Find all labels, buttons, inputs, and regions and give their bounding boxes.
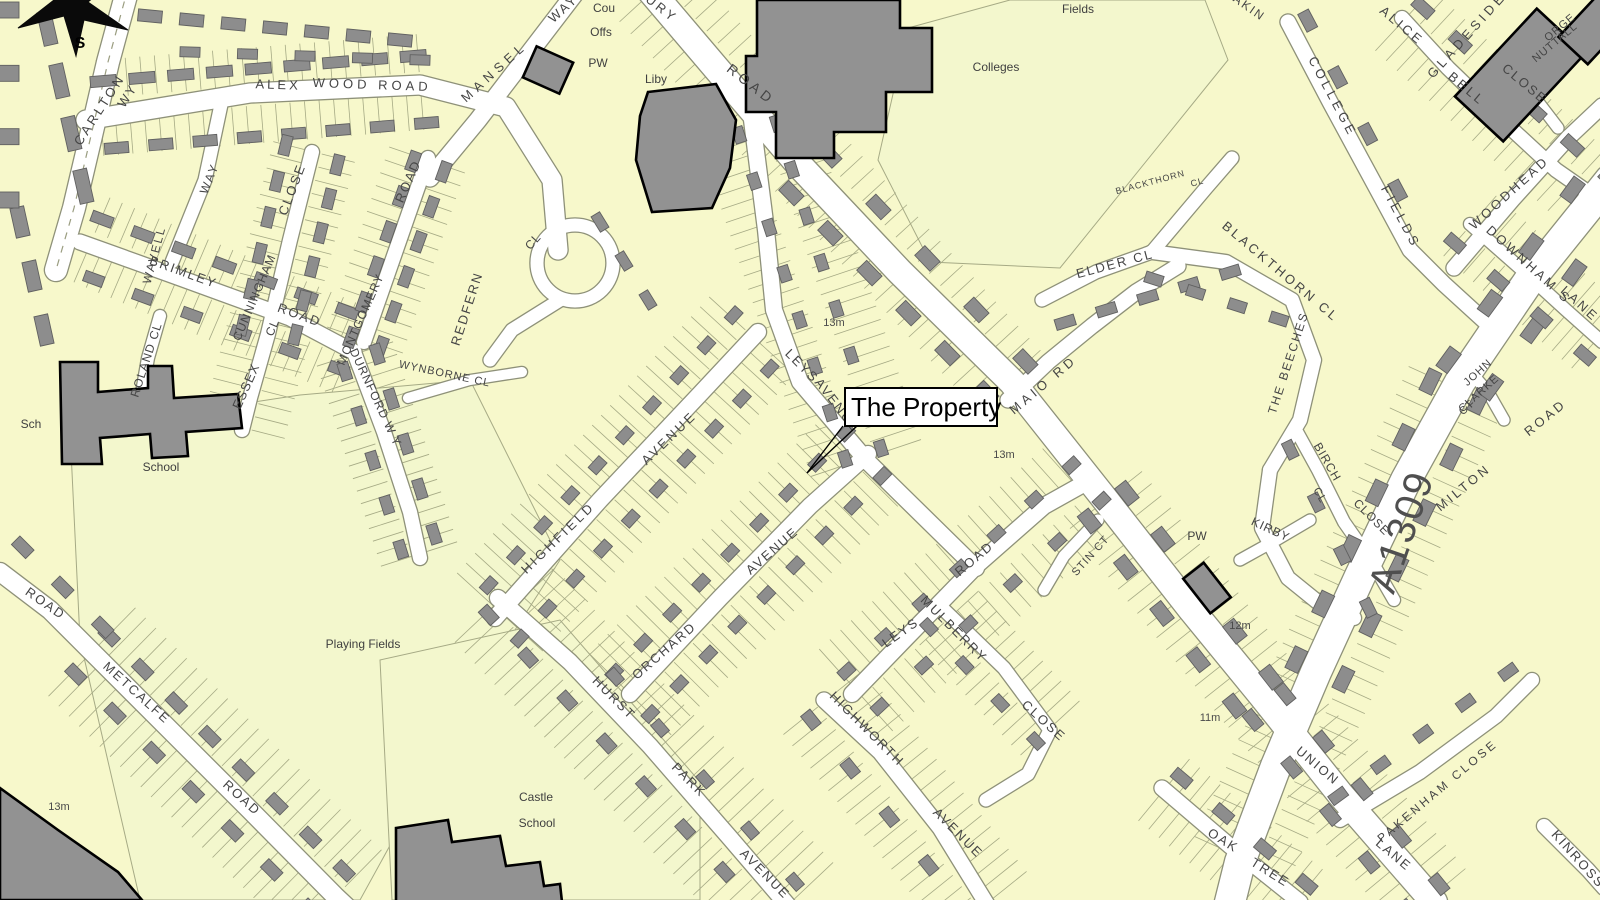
- building: [670, 675, 689, 694]
- landmark-building: [636, 84, 736, 212]
- parcel-line: [1055, 701, 1079, 723]
- parcel-line: [1288, 796, 1321, 811]
- building: [1440, 443, 1463, 471]
- parcel-line: [1002, 713, 1026, 735]
- building: [22, 260, 42, 292]
- elevation-label-13m: 13m: [48, 801, 69, 813]
- parcel-line: [882, 830, 916, 858]
- parcel-line: [1046, 691, 1070, 713]
- parcel-line: [1175, 544, 1200, 564]
- building: [1212, 803, 1235, 825]
- building: [261, 206, 276, 228]
- building: [721, 543, 740, 562]
- place-label-fields: Fields: [1062, 2, 1094, 16]
- building: [750, 513, 769, 532]
- building: [181, 306, 204, 323]
- road-leys-road: [852, 478, 1094, 694]
- building: [245, 62, 272, 75]
- building: [346, 29, 371, 43]
- parcel-line: [983, 860, 1017, 888]
- parcel-line: [1297, 789, 1322, 809]
- building: [697, 336, 716, 355]
- parcel-line: [307, 347, 322, 382]
- parcel-line: [111, 263, 126, 298]
- building: [1227, 298, 1247, 314]
- parcel-line: [325, 381, 355, 391]
- building: [304, 256, 319, 278]
- parcel-line: [1357, 643, 1390, 658]
- map-canvas[interactable]: CARLTONWYALEXWOOD ROADMANSELWAYURYROADWA…: [0, 0, 1600, 900]
- parcel-line: [707, 11, 729, 31]
- elevation-label-12m: 12m: [1229, 620, 1250, 632]
- parcel-line: [1169, 822, 1189, 847]
- parcel-line: [1136, 496, 1161, 516]
- building: [639, 290, 657, 311]
- parcel-line: [404, 253, 434, 263]
- building: [180, 47, 200, 58]
- parcel-line: [275, 104, 278, 142]
- building: [179, 13, 204, 27]
- road-maio-rd: [1008, 266, 1178, 400]
- building: [1562, 259, 1587, 287]
- building: [11, 536, 34, 559]
- building: [385, 301, 402, 324]
- parcel-line: [1365, 872, 1390, 892]
- parcel-line: [918, 875, 952, 900]
- building: [148, 138, 173, 151]
- building: [714, 861, 735, 882]
- parcel-line: [1552, 326, 1574, 351]
- building: [1455, 693, 1476, 712]
- parcel-line: [298, 246, 331, 254]
- parcel-line: [801, 729, 835, 757]
- parcel-line: [675, 62, 697, 82]
- parcel-line: [725, 789, 764, 825]
- parcel-line: [1396, 394, 1429, 409]
- building: [0, 129, 19, 145]
- parcel-line: [940, 265, 962, 285]
- building: [634, 633, 653, 652]
- building: [10, 206, 30, 238]
- building: [1413, 724, 1434, 743]
- parcel-line: [952, 278, 974, 298]
- building: [914, 656, 933, 675]
- parcel-line: [1166, 630, 1191, 650]
- road-label-akin: AKIN: [1231, 0, 1269, 24]
- parcel-line: [250, 234, 283, 242]
- parcel-line: [740, 596, 775, 631]
- parcel-line: [1205, 678, 1230, 698]
- parcel-line: [765, 831, 804, 867]
- building: [621, 509, 640, 528]
- parcel-line: [1343, 751, 1368, 771]
- parcel-line: [1397, 46, 1420, 71]
- parcel-line: [870, 426, 916, 442]
- building: [566, 569, 585, 588]
- building: [278, 134, 293, 156]
- parcel-line: [220, 352, 253, 360]
- place-label-school: School: [143, 460, 180, 474]
- building: [304, 25, 329, 39]
- parcel-line: [1251, 889, 1271, 900]
- road-label-redfern: REDFERN: [448, 270, 486, 348]
- parcel-line: [729, 35, 751, 55]
- place-label-cou: Cou: [593, 1, 615, 15]
- building: [132, 288, 155, 305]
- parcel-line: [821, 279, 867, 295]
- parcel-line: [1220, 781, 1253, 796]
- elevation-label-11m: 11m: [1200, 712, 1221, 724]
- parcel-line: [120, 208, 135, 243]
- building: [844, 346, 859, 365]
- parcel-line: [1146, 508, 1171, 528]
- parcel-line: [1149, 805, 1169, 830]
- building: [1170, 767, 1193, 789]
- building: [1332, 666, 1355, 694]
- building: [221, 17, 246, 31]
- building: [1573, 344, 1596, 366]
- building: [321, 188, 336, 210]
- road-highfield-avenue: [495, 332, 758, 618]
- parcel-line: [992, 871, 1026, 899]
- parcel-line: [979, 592, 1010, 626]
- road-highworth-avenue: [824, 700, 988, 900]
- parcel-line: [367, 211, 397, 221]
- map-svg: CARLTONWYALEXWOOD ROADMANSELWAYURYROADWA…: [0, 0, 1600, 900]
- parcel-line: [1351, 657, 1384, 672]
- parcel-line: [1159, 813, 1179, 838]
- parcel-line: [852, 373, 898, 389]
- building: [83, 270, 106, 287]
- building: [0, 65, 19, 81]
- parcel-line: [718, 23, 740, 43]
- place-label-offs: Offs: [590, 25, 612, 39]
- building: [786, 556, 805, 575]
- building: [1411, 0, 1435, 20]
- building: [206, 65, 233, 78]
- parcel-line: [653, 38, 675, 58]
- building: [1269, 311, 1289, 327]
- parcel-line: [810, 741, 844, 769]
- building: [699, 645, 718, 664]
- building: [51, 576, 74, 599]
- parcel-line: [262, 391, 295, 399]
- road-redfern-loop: [537, 225, 613, 301]
- parcel-line: [1332, 699, 1365, 714]
- road-label-alex: ALEX: [255, 76, 301, 93]
- parcel-line: [715, 778, 754, 814]
- building: [757, 585, 776, 604]
- place-label-castle: Castle: [519, 790, 553, 804]
- parcel-line: [315, 180, 348, 188]
- building: [677, 449, 696, 468]
- parcel-line: [1326, 713, 1359, 728]
- building: [423, 196, 440, 219]
- building: [387, 33, 412, 47]
- parcel-line: [174, 112, 177, 150]
- building: [1185, 284, 1205, 300]
- building: [322, 56, 349, 69]
- building: [370, 120, 395, 133]
- parcel-line: [1252, 641, 1277, 661]
- parcel-line: [825, 510, 860, 545]
- building: [410, 231, 427, 254]
- building: [670, 366, 689, 385]
- place-label-playing-fields: Playing Fields: [326, 637, 401, 651]
- parcel-line: [1282, 809, 1315, 824]
- building: [538, 599, 557, 618]
- parcel-line: [363, 97, 366, 135]
- parcel-line: [837, 774, 871, 802]
- building: [724, 306, 743, 325]
- building: [792, 311, 807, 330]
- building: [352, 53, 372, 64]
- building: [1498, 662, 1519, 681]
- parcel-line: [1336, 836, 1361, 856]
- building: [991, 693, 1010, 712]
- parcel-line: [705, 768, 744, 804]
- building: [663, 603, 682, 622]
- parcel-line: [953, 365, 975, 385]
- building: [799, 207, 814, 226]
- parcel-line: [927, 887, 961, 900]
- building: [326, 124, 351, 137]
- building: [1003, 574, 1022, 593]
- compass-south-label: S: [75, 35, 86, 52]
- road-label-road: ROAD: [1521, 396, 1569, 439]
- place-label-pw: PW: [588, 56, 608, 70]
- building: [1370, 755, 1391, 774]
- building: [760, 359, 779, 378]
- callout-label: The Property: [851, 392, 1001, 422]
- parcel-line: [265, 377, 298, 385]
- building: [1359, 597, 1377, 618]
- road-label-highworth: HIGHWORTH: [827, 688, 908, 769]
- parcel-line: [664, 50, 686, 70]
- parcel-line: [390, 291, 420, 301]
- building: [34, 314, 54, 346]
- building: [330, 154, 345, 176]
- building: [643, 396, 662, 415]
- parcel-line: [1179, 830, 1199, 855]
- building: [237, 131, 262, 144]
- parcel-line: [1242, 629, 1267, 649]
- building: [814, 253, 829, 272]
- parcel-line: [642, 26, 664, 46]
- building: [212, 256, 236, 274]
- building: [692, 573, 711, 592]
- parcel-line: [620, 1, 642, 21]
- road-label-milton: MILTON: [1433, 461, 1494, 514]
- parcel-line: [846, 786, 880, 814]
- parcel-line: [1431, 9, 1454, 34]
- parcel-line: [188, 111, 191, 149]
- building: [313, 222, 328, 244]
- parcel-line: [996, 326, 1018, 346]
- building: [0, 192, 19, 208]
- building: [866, 194, 891, 220]
- parcel-line: [713, 880, 752, 900]
- building: [414, 116, 439, 129]
- elevation-label-13m: 13m: [993, 449, 1014, 461]
- building: [193, 134, 218, 147]
- parcel-line: [755, 820, 794, 856]
- place-label-liby: Liby: [645, 72, 667, 86]
- parcel-line: [209, 305, 224, 340]
- parcel-line: [1032, 458, 1063, 492]
- parcel-line: [840, 156, 862, 176]
- parcel-line: [232, 107, 235, 145]
- building: [801, 709, 822, 731]
- parcel-line: [1037, 681, 1061, 703]
- parcel-line: [1458, 422, 1491, 437]
- parcel-line: [1275, 823, 1308, 838]
- parcel-line: [685, 0, 707, 7]
- building: [815, 526, 834, 545]
- building: [167, 68, 194, 81]
- building: [649, 479, 668, 498]
- place-label-school: School: [519, 816, 556, 830]
- parcel-line: [1028, 671, 1052, 693]
- building: [49, 63, 70, 99]
- building: [104, 141, 129, 154]
- parcel-line: [371, 367, 401, 377]
- parcel-line: [1375, 883, 1400, 900]
- building: [410, 55, 430, 66]
- building: [295, 51, 315, 62]
- road-label-kinross: KINROSS: [1549, 827, 1600, 891]
- building: [918, 855, 939, 877]
- parcel-line: [1386, 36, 1409, 61]
- parcel-line: [696, 0, 718, 19]
- parcel-line: [1128, 581, 1153, 601]
- parcel-line: [631, 14, 653, 34]
- parcel-line: [851, 168, 873, 188]
- building: [137, 9, 162, 23]
- parcel-line: [1411, 833, 1436, 853]
- parcel-line: [1390, 408, 1423, 423]
- building: [0, 2, 19, 18]
- building: [65, 663, 88, 686]
- parcel-line: [1431, 857, 1456, 877]
- parcel-line: [985, 314, 1007, 334]
- parcel-line: [797, 538, 832, 573]
- parcel-line: [1139, 796, 1159, 821]
- road-label-woodhead: WOODHEAD: [1466, 153, 1552, 232]
- parcel-line: [636, 606, 671, 641]
- parcel-line: [926, 639, 957, 673]
- parcel-line: [839, 333, 885, 349]
- building: [262, 21, 287, 35]
- parcel-line: [966, 673, 990, 695]
- elevation-label-13m: 13m: [823, 317, 844, 329]
- building: [741, 821, 760, 840]
- building: [1054, 314, 1076, 330]
- parcel-line: [1333, 739, 1358, 759]
- place-label-colleges: Colleges: [973, 60, 1020, 74]
- parcel-line: [406, 93, 409, 131]
- parcel-line: [769, 567, 804, 602]
- parcel-line: [1190, 838, 1210, 863]
- building: [615, 426, 634, 445]
- building: [269, 170, 284, 192]
- parcel-line: [1200, 847, 1220, 872]
- road-label-college: COLLEGE: [1305, 54, 1360, 140]
- building: [90, 210, 114, 228]
- building: [237, 49, 257, 60]
- building: [837, 662, 856, 681]
- parcel-line: [723, 890, 762, 900]
- building: [129, 71, 156, 84]
- parcel-line: [319, 100, 322, 138]
- parcel-line: [1421, 845, 1446, 865]
- place-label-sch: Sch: [21, 417, 42, 431]
- place-label-pw: PW: [1187, 529, 1207, 543]
- road-label-elder-cl: ELDER CL: [1074, 246, 1155, 281]
- parcel-line: [841, 630, 872, 664]
